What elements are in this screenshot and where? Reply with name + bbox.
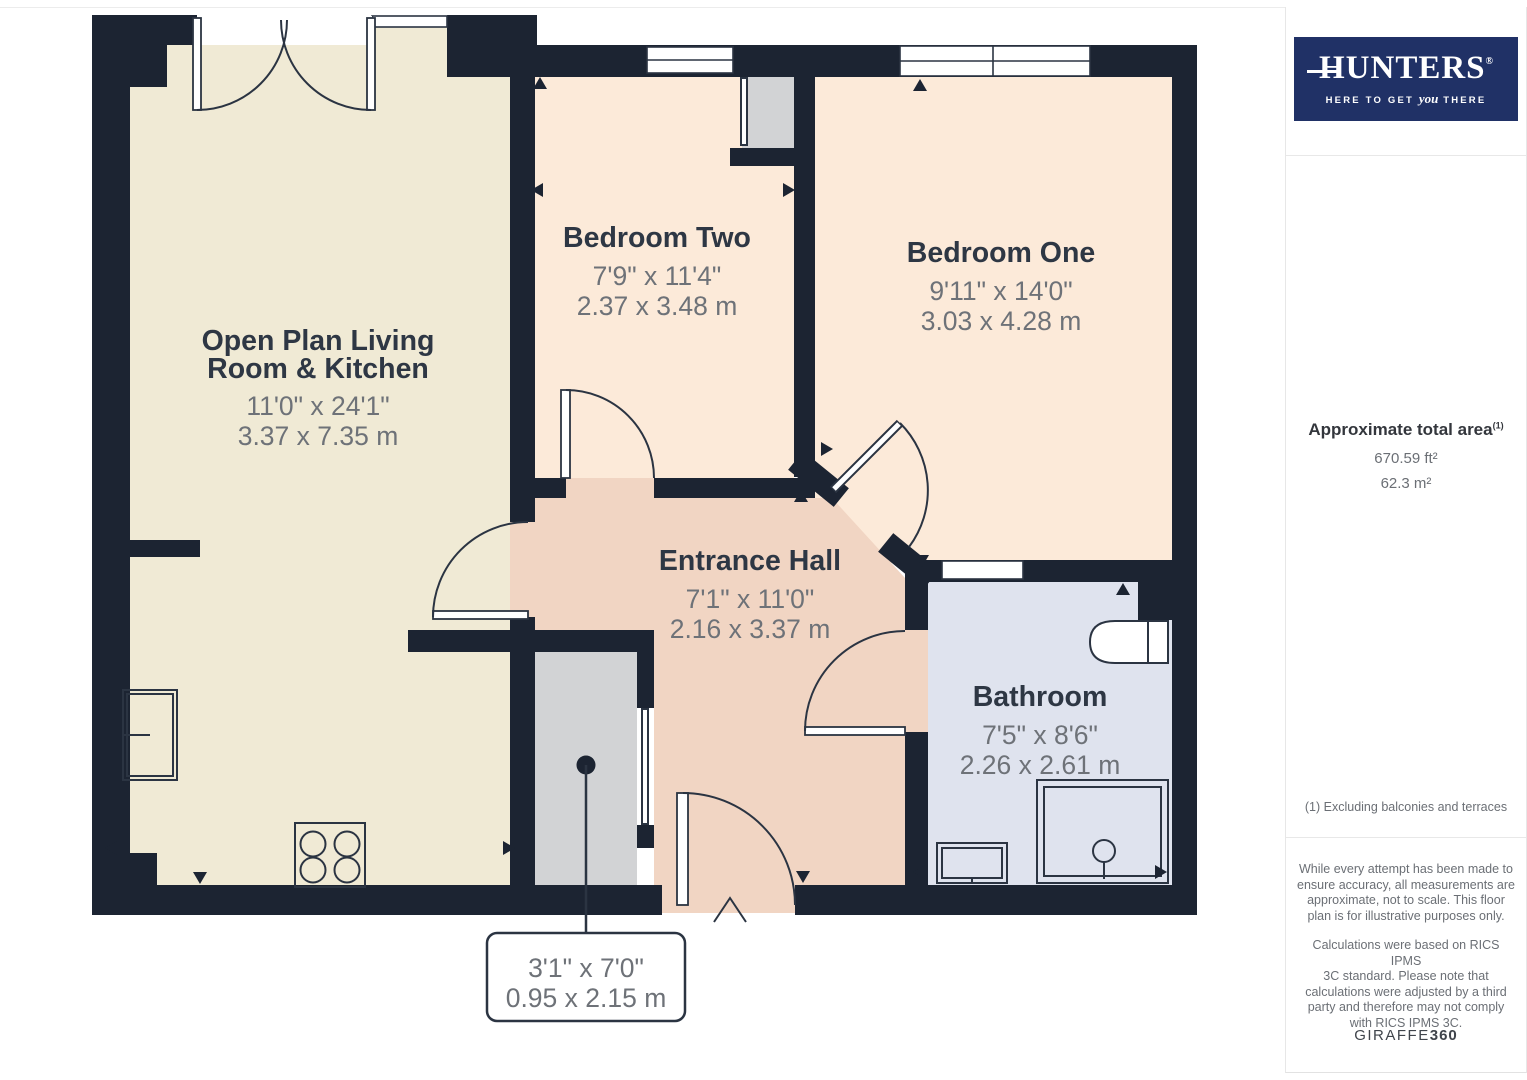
hunters-tagline: HERE TO GET you THERE bbox=[1326, 91, 1487, 107]
room-floors bbox=[130, 27, 1172, 913]
logo-section: HUNTERS® HERE TO GET you THERE bbox=[1286, 7, 1526, 156]
doorway-gap bbox=[903, 630, 928, 732]
total-area-imperial: 670.59 ft² bbox=[1286, 446, 1526, 471]
bedroom-two-closet-floor bbox=[742, 77, 794, 148]
hunters-logo-hbar bbox=[1307, 70, 1341, 73]
area-footnote: (1) Excluding balconies and terraces bbox=[1286, 800, 1526, 814]
living-room-metric: 3.37 x 7.35 m bbox=[238, 421, 399, 451]
living-room-floor bbox=[130, 27, 510, 885]
entrance-hall-label: Entrance Hall bbox=[659, 545, 841, 577]
hunters-logo: HUNTERS® HERE TO GET you THERE bbox=[1294, 37, 1518, 121]
total-area-metric: 62.3 m² bbox=[1286, 471, 1526, 496]
toilet-icon bbox=[1090, 621, 1168, 663]
bedroom-one-metric: 3.03 x 4.28 m bbox=[921, 306, 1082, 336]
bedroom-two-metric: 2.37 x 3.48 m bbox=[577, 291, 738, 321]
bathroom-metric: 2.26 x 2.61 m bbox=[960, 750, 1121, 780]
entrance-hall-imperial: 7'1" x 11'0" bbox=[686, 584, 815, 614]
bathroom-door-leaf bbox=[805, 727, 905, 735]
giraffe360-credit: GIRAFFE360 bbox=[1286, 1027, 1526, 1045]
bedroom-one-label: Bedroom One bbox=[907, 237, 1095, 269]
bedroom-two-label: Bedroom Two bbox=[563, 222, 751, 254]
cupboard-imperial: 3'1" x 7'0" bbox=[528, 953, 644, 983]
floorplan-drawing: Open Plan Living Room & Kitchen 11'0" x … bbox=[0, 0, 1285, 1080]
doorway-gap bbox=[566, 478, 654, 498]
front-door-leaf bbox=[677, 793, 688, 905]
cupboard-metric: 0.95 x 2.15 m bbox=[506, 983, 667, 1013]
living-room-door-leaf bbox=[433, 611, 528, 619]
entrance-hall-metric: 2.16 x 3.37 m bbox=[670, 614, 831, 644]
bedroom-one-imperial: 9'11" x 14'0" bbox=[929, 276, 1072, 306]
info-sidebar: HUNTERS® HERE TO GET you THERE Approxima… bbox=[1285, 7, 1527, 1073]
bathroom-imperial: 7'5" x 8'6" bbox=[982, 720, 1098, 750]
floorplan-page: Open Plan Living Room & Kitchen 11'0" x … bbox=[0, 0, 1527, 1080]
disclaimer-rics: Calculations were based on RICS IPMS 3C … bbox=[1286, 938, 1526, 1031]
french-door-right-leaf bbox=[367, 18, 375, 110]
living-room-window bbox=[372, 16, 447, 27]
registered-icon: ® bbox=[1486, 56, 1493, 67]
bathroom-internal-window bbox=[942, 561, 1023, 579]
bedroom-two-imperial: 7'9" x 11'4" bbox=[593, 261, 722, 291]
doorway-gap bbox=[510, 522, 535, 617]
disclaimer-accuracy: While every attempt has been made to ens… bbox=[1286, 862, 1526, 924]
disclaimer-section: While every attempt has been made to ens… bbox=[1286, 837, 1526, 1031]
living-room-imperial: 11'0" x 24'1" bbox=[246, 391, 389, 421]
hunters-brand: HUNTERS® bbox=[1319, 52, 1493, 85]
bedroom-two-door-leaf bbox=[561, 390, 570, 478]
bathroom-label: Bathroom bbox=[973, 681, 1108, 713]
living-room-label-line2: Room & Kitchen bbox=[207, 353, 429, 385]
total-area-title: Approximate total area(1) bbox=[1286, 420, 1526, 440]
french-door-left-leaf bbox=[193, 18, 201, 110]
total-area-block: Approximate total area(1) 670.59 ft² 62.… bbox=[1286, 420, 1526, 496]
